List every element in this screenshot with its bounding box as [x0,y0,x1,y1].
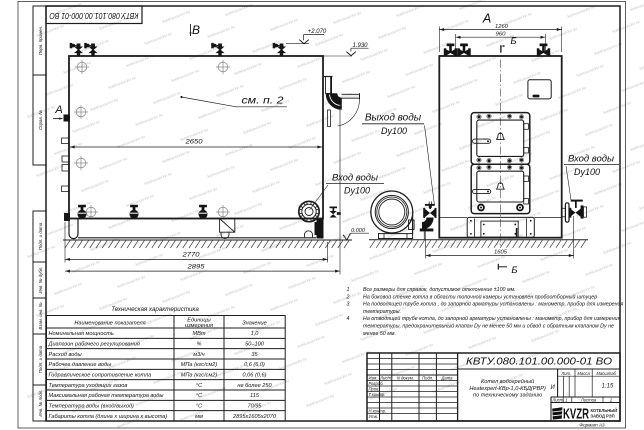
svg-text:KVZR: KVZR [563,407,589,423]
svg-text:Вход воды: Вход воды [332,173,378,184]
svg-text:kotelzavod-kvr.kz: kotelzavod-kvr.kz [36,164,65,178]
svg-text:мм: мм [195,414,203,420]
svg-text:115: 115 [250,393,260,399]
svg-text:Утв.: Утв. [369,414,379,419]
svg-text:Значение: Значение [242,321,267,327]
svg-text:Б: Б [510,36,516,47]
svg-text:kotelzavod-kvr.kz: kotelzavod-kvr.kz [117,275,146,289]
svg-text:Масштаб: Масштаб [596,371,616,376]
svg-text:1: 1 [347,287,350,293]
svg-text:kotelzavod-kvr.kz: kotelzavod-kvr.kz [621,79,644,93]
svg-text:kotelzavod-kvr.kz: kotelzavod-kvr.kz [288,136,317,150]
svg-text:На боковой стенке котла в обла: На боковой стенке котла в области топочн… [363,293,597,300]
svg-text:kotelzavod-kvr.kz: kotelzavod-kvr.kz [612,160,641,174]
svg-text:Наименование показателя: Наименование показателя [74,321,145,327]
svg-text:МПа (кгс/см2): МПа (кгс/см2) [181,373,218,379]
svg-text:kotelzavod-kvr.kz: kotelzavod-kvr.kz [243,261,272,275]
svg-text:kotelzavod-kvr.kz: kotelzavod-kvr.kz [603,101,632,115]
svg-text:kotelzavod-kvr.kz: kotelzavod-kvr.kz [252,180,281,194]
svg-text:kotelzavod-kvr.kz: kotelzavod-kvr.kz [72,120,101,134]
svg-text:°С: °С [196,383,203,389]
svg-text:kotelzavod-kvr.kz: kotelzavod-kvr.kz [207,305,236,319]
svg-text:kotelzavod-kvr.kz: kotelzavod-kvr.kz [198,386,227,400]
svg-text:kotelzavod-kvr.kz: kotelzavod-kvr.kz [144,32,173,46]
svg-text:kotelzavod-kvr.kz: kotelzavod-kvr.kz [441,19,470,33]
svg-text:2: 2 [346,294,350,300]
svg-text:kotelzavod-kvr.kz: kotelzavod-kvr.kz [639,57,644,71]
svg-text:На отводящей трубе котла, до з: На отводящей трубе котла, до запорной ар… [363,315,621,322]
svg-text:kotelzavod-kvr.kz: kotelzavod-kvr.kz [504,12,533,26]
svg-text:Б: Б [511,265,517,276]
svg-text:Heatexpert-КВр-1,0-КБД(РВР): Heatexpert-КВр-1,0-КБД(РВР) [469,386,546,392]
svg-text:Максимальная рабочая температу: Максимальная рабочая температура воды [49,393,164,399]
svg-text:kotelzavod-kvr.kz: kotelzavod-kvr.kz [540,108,569,122]
svg-text:°С: °С [196,393,203,399]
svg-text:kotelzavod-kvr.kz: kotelzavod-kvr.kz [369,247,398,261]
svg-text:kotelzavod-kvr.kz: kotelzavod-kvr.kz [243,121,272,135]
svg-text:Вход воды: Вход воды [568,154,614,165]
svg-text:1260: 1260 [495,24,509,30]
svg-text:Температура воды (вход/выход): Температура воды (вход/выход) [49,404,135,410]
svg-text:Dy100: Dy100 [344,186,370,196]
svg-text:2895х1605х2070: 2895х1605х2070 [232,414,277,420]
svg-text:kotelzavod-kvr.kz: kotelzavod-kvr.kz [279,77,308,91]
svg-text:0,06 (0,6): 0,06 (0,6) [243,373,267,379]
svg-text:kotelzavod-kvr.kz: kotelzavod-kvr.kz [621,219,644,233]
svg-text:kotelzavod-kvr.kz: kotelzavod-kvr.kz [216,224,245,238]
svg-text:kotelzavod-kvr.kz: kotelzavod-kvr.kz [207,165,236,179]
svg-text:kotelzavod-kvr.kz: kotelzavod-kvr.kz [333,151,362,165]
svg-text:kotelzavod-kvr.kz: kotelzavod-kvr.kz [522,270,551,284]
svg-text:kotelzavod-kvr.kz: kotelzavod-kvr.kz [630,0,644,12]
svg-text:kotelzavod-kvr.kz: kotelzavod-kvr.kz [63,201,92,215]
svg-text:Dy100: Dy100 [381,126,407,136]
svg-text:kotelzavod-kvr.kz: kotelzavod-kvr.kz [135,113,164,127]
svg-text:Подп.: Подп. [422,375,433,380]
svg-text:2770: 2770 [181,252,200,259]
svg-text:kotelzavod-kvr.kz: kotelzavod-kvr.kz [90,98,119,112]
svg-text:kotelzavod-kvr.kz: kotelzavod-kvr.kz [414,262,443,276]
svg-text:Дата: Дата [440,375,453,380]
svg-text:70/95: 70/95 [248,404,263,410]
svg-text:Котел водогрейный: Котел водогрейный [481,378,534,385]
svg-text:kotelzavod-kvr.kz: kotelzavod-kvr.kz [522,130,551,144]
svg-text:Н.контр.: Н.контр. [369,408,387,413]
svg-text:kotelzavod-kvr.kz: kotelzavod-kvr.kz [189,187,218,201]
svg-text:kotelzavod-kvr.kz: kotelzavod-kvr.kz [468,336,497,350]
svg-text:50–100: 50–100 [245,342,265,348]
svg-text:Диапазон рабочего регулировани: Диапазон рабочего регулирования [48,342,140,348]
svg-text:kotelzavod-kvr.kz: kotelzavod-kvr.kz [387,85,416,99]
svg-text:kotelzavod-kvr.kz: kotelzavod-kvr.kz [153,371,182,385]
svg-text:kotelzavod-kvr.kz: kotelzavod-kvr.kz [315,313,344,327]
svg-text:kotelzavod-kvr.kz: kotelzavod-kvr.kz [630,138,644,152]
svg-text:kotelzavod-kvr.kz: kotelzavod-kvr.kz [108,76,137,90]
svg-text:kotelzavod-kvr.kz: kotelzavod-kvr.kz [450,78,479,92]
svg-text:КВТУ.080.101.00.000-01 ВО: КВТУ.080.101.00.000-01 ВО [466,356,612,368]
svg-text:kotelzavod-kvr.kz: kotelzavod-kvr.kz [351,129,380,143]
svg-text:kotelzavod-kvr.kz: kotelzavod-kvr.kz [405,63,434,77]
svg-text:kotelzavod-kvr.kz: kotelzavod-kvr.kz [585,263,614,277]
svg-text:kotelzavod-kvr.kz: kotelzavod-kvr.kz [333,11,362,25]
svg-text:kotelzavod-kvr.kz: kotelzavod-kvr.kz [171,69,200,83]
svg-text:kotelzavod-kvr.kz: kotelzavod-kvr.kz [297,335,326,349]
svg-text:менее 50 мм.: менее 50 мм. [363,331,396,337]
svg-text:Инв. № подл.: Инв. № подл. [38,389,43,416]
svg-text:kotelzavod-kvr.kz: kotelzavod-kvr.kz [351,269,380,283]
svg-text:kotelzavod-kvr.kz: kotelzavod-kvr.kz [549,27,578,41]
svg-text:kotelzavod-kvr.kz: kotelzavod-kvr.kz [54,282,83,296]
svg-text:kotelzavod-kvr.kz: kotelzavod-kvr.kz [576,64,605,78]
svg-text:И: И [550,385,555,391]
svg-text:kotelzavod-kvr.kz: kotelzavod-kvr.kz [324,372,353,386]
svg-text:kotelzavod-kvr.kz: kotelzavod-kvr.kz [567,5,596,19]
svg-text:kotelzavod-kvr.kz: kotelzavod-kvr.kz [153,91,182,105]
svg-text:Т.контр.: Т.контр. [369,392,386,397]
svg-text:Номинальная мощность: Номинальная мощность [49,331,114,337]
svg-text:kotelzavod-kvr.kz: kotelzavod-kvr.kz [234,62,263,76]
svg-text:N докум.: N докум. [397,375,414,380]
svg-text:kotelzavod-kvr.kz: kotelzavod-kvr.kz [612,20,641,34]
svg-text:%: % [197,342,202,348]
svg-text:kotelzavod-kvr.kz: kotelzavod-kvr.kz [342,210,371,224]
svg-text:КОТЕЛЬНЫЙ: КОТЕЛЬНЫЙ [591,408,618,413]
svg-text:kotelzavod-kvr.kz: kotelzavod-kvr.kz [603,241,632,255]
svg-text:kotelzavod-kvr.kz: kotelzavod-kvr.kz [207,25,236,39]
svg-text:А: А [54,104,62,116]
svg-text:Лит.: Лит. [560,371,571,376]
svg-text:35: 35 [251,352,258,358]
svg-text:kotelzavod-kvr.kz: kotelzavod-kvr.kz [270,18,299,32]
svg-text:kotelzavod-kvr.kz: kotelzavod-kvr.kz [441,159,470,173]
svg-text:2: 2 [609,397,613,402]
svg-text:1,0: 1,0 [251,331,260,337]
svg-text:4: 4 [347,316,350,322]
svg-text:не более 250: не более 250 [237,383,272,389]
svg-text:Подп. и дата: Подп. и дата [38,345,43,373]
svg-text:kotelzavod-kvr.kz: kotelzavod-kvr.kz [225,143,254,157]
svg-text:На подводящей трубе котла ,: На подводящей трубе котла , до запорной … [363,301,623,308]
svg-text:1605: 1605 [494,250,508,256]
svg-text:kotelzavod-kvr.kz: kotelzavod-kvr.kz [468,196,497,210]
svg-text:Лист: Лист [551,397,563,402]
svg-text:kotelzavod-kvr.kz: kotelzavod-kvr.kz [378,166,407,180]
svg-text:kotelzavod-kvr.kz: kotelzavod-kvr.kz [378,26,407,40]
svg-text:температуры, предохранительный: температуры, предохранительный клапан Dу… [363,323,614,330]
svg-text:Листов: Листов [580,397,597,402]
svg-text:Лист: Лист [379,375,391,380]
svg-text:Расход воды: Расход воды [49,352,82,358]
svg-text:kotelzavod-kvr.kz: kotelzavod-kvr.kz [225,3,254,17]
svg-text:kotelzavod-kvr.kz: kotelzavod-kvr.kz [306,394,335,408]
svg-text:kotelzavod-kvr.kz: kotelzavod-kvr.kz [108,356,137,370]
svg-text:см. п. 2: см. п. 2 [242,96,285,107]
svg-text:kotelzavod-kvr.kz: kotelzavod-kvr.kz [270,298,299,312]
svg-text:kotelzavod-kvr.kz: kotelzavod-kvr.kz [360,48,389,62]
svg-text:ЗАВОД РЭП: ЗАВОД РЭП [591,413,615,418]
svg-text:по техническому заданию: по техническому заданию [473,392,543,398]
svg-text:kotelzavod-kvr.kz: kotelzavod-kvr.kz [342,70,371,84]
svg-text:Гидравлическое сопротивление к: Гидравлическое сопротивление котла [49,373,152,379]
svg-text:kotelzavod-kvr.kz: kotelzavod-kvr.kz [495,93,524,107]
svg-text:Инв. № дубл.: Инв. № дубл. [38,266,43,293]
svg-text:МВт: МВт [192,331,205,337]
svg-text:2895: 2895 [186,263,205,270]
svg-text:температуры.: температуры. [363,309,401,315]
svg-text:Dy100: Dy100 [574,167,600,177]
svg-text:kotelzavod-kvr.kz: kotelzavod-kvr.kz [432,100,461,114]
svg-text:kotelzavod-kvr.kz: kotelzavod-kvr.kz [288,276,317,290]
svg-text:Взам. инв. №: Взам. инв. № [38,302,43,329]
svg-text:kotelzavod-kvr.kz: kotelzavod-kvr.kz [216,84,245,98]
svg-text:kotelzavod-kvr.kz: kotelzavod-kvr.kz [144,172,173,186]
svg-text:kotelzavod-kvr.kz: kotelzavod-kvr.kz [639,197,644,211]
svg-text:1: 1 [565,397,567,402]
svg-text:kotelzavod-kvr.kz: kotelzavod-kvr.kz [585,123,614,137]
svg-text:kotelzavod-kvr.kz: kotelzavod-kvr.kz [198,246,227,260]
svg-text:Рабочее давление воды: Рабочее давление воды [49,362,112,368]
svg-text:Изм.: Изм. [369,375,378,380]
svg-text:Температура уходящих газов: Температура уходящих газов [49,383,128,389]
svg-text:kotelzavod-kvr.kz: kotelzavod-kvr.kz [306,254,335,268]
svg-text:В: В [192,23,200,37]
svg-text:kotelzavod-kvr.kz: kotelzavod-kvr.kz [225,283,254,297]
svg-text:Масса: Масса [577,371,590,376]
svg-text:kotelzavod-kvr.kz: kotelzavod-kvr.kz [423,181,452,195]
svg-text:°С: °С [196,404,203,410]
svg-text:Техническая характеристика: Техническая характеристика [111,306,199,313]
svg-text:kotelzavod-kvr.kz: kotelzavod-kvr.kz [234,202,263,216]
svg-text:kotelzavod-kvr.kz: kotelzavod-kvr.kz [171,209,200,223]
svg-text:А: А [482,12,491,26]
svg-text:kotelzavod-kvr.kz: kotelzavod-kvr.kz [162,290,191,304]
svg-text:kotelzavod-kvr.kz: kotelzavod-kvr.kz [144,312,173,326]
svg-text:Подп. и дата: Подп. и дата [38,222,43,250]
svg-text:kotelzavod-kvr.kz: kotelzavod-kvr.kz [270,158,299,172]
svg-text:3: 3 [347,302,350,308]
svg-text:kotelzavod-kvr.kz: kotelzavod-kvr.kz [468,56,497,70]
svg-text:kotelzavod-kvr.kz: kotelzavod-kvr.kz [531,189,560,203]
svg-text:Все размеры для справок, допус: Все размеры для справок, допустимое откл… [363,287,516,293]
svg-text:kotelzavod-kvr.kz: kotelzavod-kvr.kz [594,182,623,196]
svg-text:1:15: 1:15 [602,384,614,390]
svg-text:kotelzavod-kvr.kz: kotelzavod-kvr.kz [162,10,191,24]
svg-text:Выход воды: Выход воды [365,113,422,124]
svg-text:м3/ч: м3/ч [193,352,204,358]
svg-text:960: 960 [496,32,507,38]
svg-text:Формат А3: Формат А3 [579,422,605,427]
svg-text:kotelzavod-kvr.kz: kotelzavod-kvr.kz [198,106,227,120]
svg-text:kotelzavod-kvr.kz: kotelzavod-kvr.kz [72,260,101,274]
svg-text:kotelzavod-kvr.kz: kotelzavod-kvr.kz [81,179,110,193]
svg-text:Перв. примен.: Перв. примен. [38,26,43,55]
svg-text:kotelzavod-kvr.kz: kotelzavod-kvr.kz [531,329,560,343]
svg-text:Разраб.: Разраб. [369,381,384,386]
svg-text:измерения: измерения [185,323,213,329]
svg-text:kotelzavod-kvr.kz: kotelzavod-kvr.kz [216,364,245,378]
svg-text:Габариты котла (длина х ширина: Габариты котла (длина х ширина х высота) [49,414,168,420]
svg-text:kotelzavod-kvr.kz: kotelzavod-kvr.kz [162,150,191,164]
svg-text:kotelzavod-kvr.kz: kotelzavod-kvr.kz [540,248,569,262]
svg-text:Справ. №: Справ. № [38,110,43,130]
svg-text:kotelzavod-kvr.kz: kotelzavod-kvr.kz [594,42,623,56]
svg-text:0,6 (6,0): 0,6 (6,0) [244,362,265,368]
svg-text:kotelzavod-kvr.kz: kotelzavod-kvr.kz [135,253,164,267]
svg-text:МПа (кгс/см2): МПа (кгс/см2) [181,362,218,368]
svg-text:kotelzavod-kvr.kz: kotelzavod-kvr.kz [99,157,128,171]
svg-text:kotelzavod-kvr.kz: kotelzavod-kvr.kz [189,47,218,61]
svg-text:kotelzavod-kvr.kz: kotelzavod-kvr.kz [513,71,542,85]
svg-text:КВТУ.080.101.00.000-01 ВО: КВТУ.080.101.00.000-01 ВО [50,11,139,20]
svg-text:kotelzavod-kvr.kz: kotelzavod-kvr.kz [396,144,425,158]
svg-text:Пров.: Пров. [369,386,380,391]
svg-text:2650: 2650 [184,139,203,146]
